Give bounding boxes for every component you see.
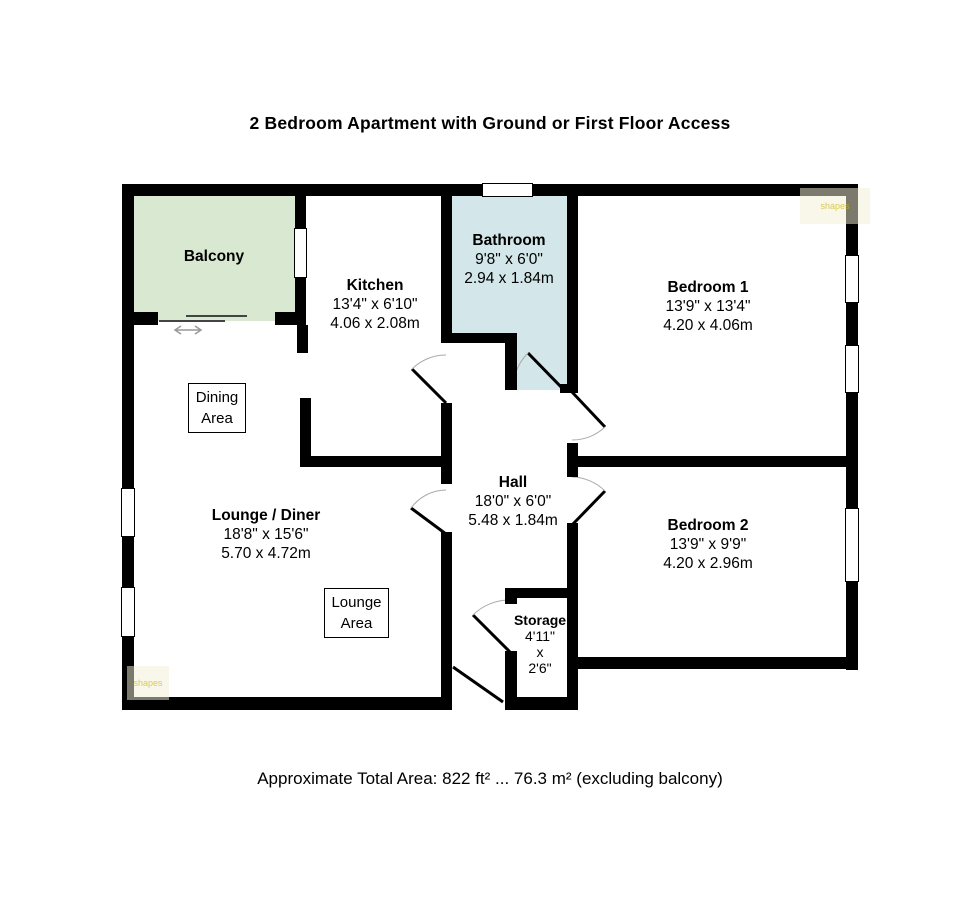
window-lounge-upper	[121, 488, 135, 537]
room-dims-imperial: 18'8" x 15'6"	[212, 525, 321, 544]
lounge-door	[411, 490, 446, 534]
label-lounge-diner: Lounge / Diner 18'8" x 15'6" 5.70 x 4.72…	[212, 506, 321, 563]
wall-bathroom-left	[441, 190, 452, 343]
room-dims-metric: 4.06 x 2.08m	[330, 314, 420, 333]
label-storage: Storage 4'11" x 2'6"	[514, 612, 566, 676]
room-name: Bedroom 1	[663, 278, 753, 297]
watermark-bottom-left: shapes	[127, 666, 169, 700]
wall-balcony-bottom-right	[275, 312, 305, 325]
window-bedroom2	[845, 508, 859, 582]
floor-plan-page: 2 Bedroom Apartment with Ground or First…	[0, 0, 980, 915]
wall-storage-left-stub	[505, 588, 517, 604]
room-dims-imperial: 13'4" x 6'10"	[330, 295, 420, 314]
wall-bathroom-alcove-left	[505, 333, 517, 390]
dining-area-line2: Area	[189, 408, 245, 429]
wall-bottom-lounge	[122, 697, 452, 710]
lounge-area-line2: Area	[325, 613, 388, 634]
room-dims-metric: 4.20 x 2.96m	[663, 554, 753, 573]
floor-plan: Balcony Kitchen 13'4" x 6'10" 4.06 x 2.0…	[0, 0, 980, 915]
wall-hall-left-b	[441, 458, 452, 484]
dining-area-box: Dining Area	[188, 383, 246, 433]
label-hall: Hall 18'0" x 6'0" 5.48 x 1.84m	[468, 473, 558, 530]
storage-door	[473, 600, 510, 652]
window-lounge-lower	[121, 587, 135, 637]
window-bedroom1-upper	[845, 255, 859, 303]
room-dims-imperial: 13'9" x 9'9"	[663, 535, 753, 554]
room-name: Bedroom 2	[663, 516, 753, 535]
room-dims-metric: 5.70 x 4.72m	[212, 544, 321, 563]
room-dims-imperial: 9'8" x 6'0"	[464, 250, 554, 269]
double-arrow-icon	[175, 326, 201, 334]
room-name: Hall	[468, 473, 558, 492]
window-bathroom-top	[482, 183, 533, 197]
room-dims-metric: 5.48 x 1.84m	[468, 511, 558, 530]
bathroom-door	[513, 353, 564, 390]
lounge-area-box: Lounge Area	[324, 588, 389, 638]
room-dims-metric: 4.20 x 4.06m	[663, 316, 753, 335]
room-name: Balcony	[184, 247, 244, 266]
label-bathroom: Bathroom 9'8" x 6'0" 2.94 x 1.84m	[464, 231, 554, 288]
label-bedroom2: Bedroom 2 13'9" x 9'9" 4.20 x 2.96m	[663, 516, 753, 573]
balcony-sliding-door	[159, 316, 247, 334]
bedroom2-door	[572, 477, 605, 525]
watermark-top-right: shapes	[800, 188, 870, 224]
label-balcony: Balcony	[184, 247, 244, 266]
room-name: Bathroom	[464, 231, 554, 250]
wall-bedroom1-left	[567, 190, 578, 393]
dining-area-line1: Dining	[189, 387, 245, 408]
room-dims-imperial: 18'0" x 6'0"	[468, 492, 558, 511]
kitchen-door	[412, 355, 446, 403]
room-dims-line3: 2'6"	[514, 660, 566, 676]
wall-bedroom-divider	[573, 456, 858, 467]
label-kitchen: Kitchen 13'4" x 6'10" 4.06 x 2.08m	[330, 276, 420, 333]
room-name: Lounge / Diner	[212, 506, 321, 525]
label-bedroom1: Bedroom 1 13'9" x 13'4" 4.20 x 4.06m	[663, 278, 753, 335]
lounge-area-line1: Lounge	[325, 592, 388, 613]
wall-hall-right-low	[567, 523, 578, 710]
window-balcony-kitchen	[294, 228, 307, 278]
room-dims-metric: 2.94 x 1.84m	[464, 269, 554, 288]
window-bedroom1-lower	[845, 345, 859, 393]
room-name: Storage	[514, 612, 566, 628]
wall-bottom-bedroom2	[568, 657, 858, 669]
bedroom1-door	[572, 392, 605, 440]
room-name: Kitchen	[330, 276, 420, 295]
wall-hall-left-a	[441, 403, 452, 458]
wall-kitchen-left-stub	[297, 325, 308, 353]
wall-balcony-bottom-left	[122, 312, 158, 325]
wall-hall-left-c	[441, 532, 452, 710]
wall-lounge-divider-horiz	[300, 456, 450, 467]
room-dims-line1: 4'11"	[514, 628, 566, 644]
room-dims-line2: x	[514, 644, 566, 660]
front-door	[444, 667, 503, 702]
room-dims-imperial: 13'9" x 13'4"	[663, 297, 753, 316]
